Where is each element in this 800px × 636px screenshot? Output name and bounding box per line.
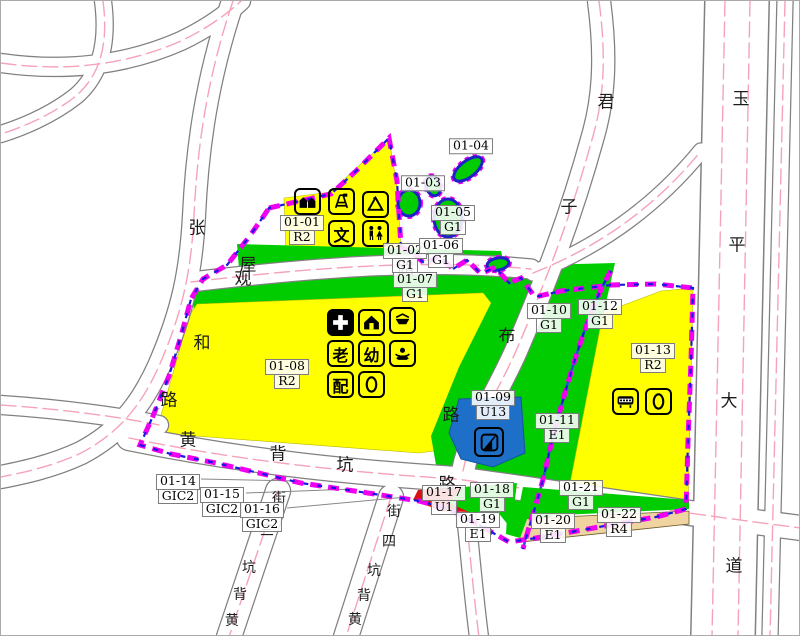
culture-hall-icon (389, 307, 416, 334)
parcel-label-01-10: 01-10G1 (527, 303, 571, 333)
parcel-label-01-04: 01-04 (449, 138, 493, 154)
oval-icon (645, 388, 672, 415)
road-char: 背 (357, 585, 371, 605)
fitness-icon (389, 340, 416, 367)
road-char: 布 (499, 322, 516, 347)
parcel-label-01-19: 01-19E1 (456, 512, 500, 542)
parcel-label-01-07: 01-07G1 (393, 272, 437, 302)
parcel-label-01-12: 01-12G1 (578, 299, 622, 329)
parcel-label-01-06: 01-06G1 (419, 238, 463, 268)
road-char: 大 (721, 387, 738, 412)
road-char: 屋 (240, 251, 257, 276)
bus-stop-icon (612, 388, 639, 415)
road-char: 街 (387, 501, 401, 521)
road-char: 坑 (337, 451, 354, 476)
parcel-label-01-22: 01-22R4 (597, 507, 641, 537)
oval-icon (358, 371, 385, 398)
parcel-label-01-09: 01-09U13 (471, 390, 515, 420)
parcel-label-01-13: 01-13R2 (631, 343, 675, 373)
road-char: 道 (726, 552, 743, 577)
road-char: 平 (729, 231, 746, 256)
kindergarten-char-icon: 幼 (358, 340, 385, 367)
parcel-label-01-16: 01-16GIC2 (240, 502, 284, 532)
road-char: 坑 (367, 560, 381, 580)
clinic-cross-icon (327, 309, 354, 336)
parcel-label-01-05: 01-05G1 (431, 205, 475, 235)
parcel-label-01-14: 01-14GIC2 (156, 474, 200, 504)
parcel-label-01-08: 01-08R2 (265, 359, 309, 389)
road-char: 黄 (180, 426, 197, 451)
substation-icon (474, 427, 504, 457)
road-char: 坑 (242, 557, 256, 577)
road-char: 张 (189, 214, 206, 239)
parcel-label-01-21: 01-21G1 (559, 480, 603, 510)
community-home-icon (358, 309, 385, 336)
culture-char-icon: 文 (328, 220, 355, 247)
road-char: 玉 (733, 85, 750, 110)
zoning-map: 01-01R2 01-02G1 01-03 01-04 01-05G1 01-0… (0, 0, 800, 636)
parcel-label-01-11: 01-11E1 (535, 413, 579, 443)
market-icon (294, 188, 321, 215)
road-char: 路 (443, 401, 460, 426)
road-char: 和 (194, 329, 211, 354)
road-char: 路 (161, 386, 178, 411)
parcel-label-01-01: 01-01R2 (280, 215, 324, 245)
road-char: 背 (233, 584, 247, 604)
parcel-label-01-03: 01-03 (401, 175, 445, 191)
recycle-icon (362, 191, 389, 218)
distribution-char-icon: 配 (327, 371, 354, 398)
parcel-label-01-20: 01-20E1 (531, 513, 575, 543)
tower-icon (328, 188, 355, 215)
road-char: 黄 (225, 610, 239, 630)
road-char: 子 (561, 193, 578, 218)
parcel-label-01-18: 01-18G1 (470, 482, 514, 512)
road-char: 君 (598, 88, 615, 113)
elderly-char-icon: 老 (327, 340, 354, 367)
road-char: 黄 (348, 609, 362, 629)
road-char: 背 (270, 440, 287, 465)
road-char: 四 (382, 531, 396, 551)
parcel-label-01-15: 01-15GIC2 (200, 487, 244, 517)
